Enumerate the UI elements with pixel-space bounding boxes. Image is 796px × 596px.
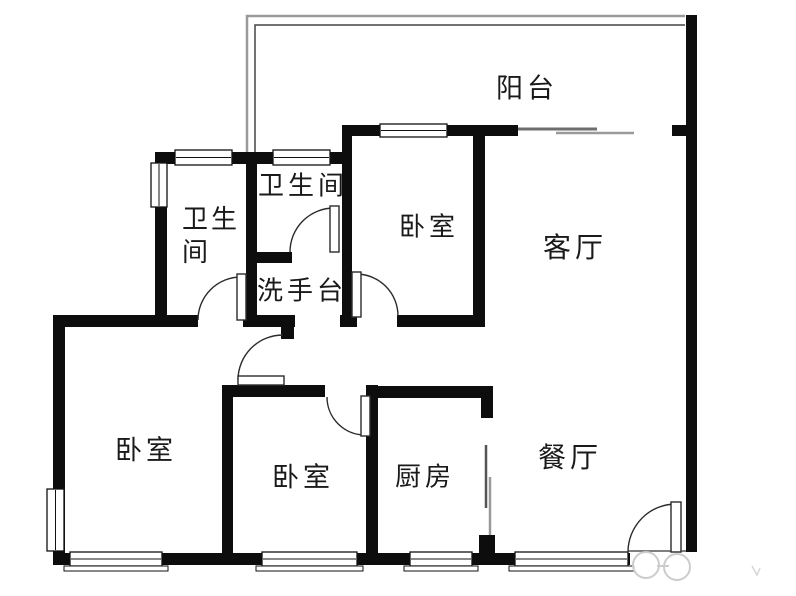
door-bathroom-left-leaf: [237, 274, 246, 320]
door-bedroom-mid-arc: [327, 397, 365, 435]
door-entry-leaf: [671, 502, 681, 552]
watermark-logo-left: [633, 552, 659, 578]
wall-hall-door-stub: [281, 327, 294, 339]
room-label-bedroom-top: 卧室: [399, 207, 459, 244]
window-bedroom-left-south-sill: [64, 566, 168, 571]
watermark-tick: [752, 566, 760, 575]
door-bedroom-top-arc: [356, 274, 398, 316]
wall-right: [686, 15, 697, 552]
door-bedroom-top-leaf: [352, 272, 361, 317]
wall-bathrooms-middle: [246, 152, 257, 320]
wall-kitchen-stub-north: [481, 386, 493, 418]
wall-bedroom-mid-north: [222, 385, 325, 397]
door-hall-leaf: [238, 376, 284, 385]
wall-hall-north-east: [243, 315, 295, 327]
room-label-kitchen: 厨房: [395, 457, 455, 494]
wall-kitchen-north: [366, 386, 493, 398]
wall-balcony-stub: [672, 125, 686, 136]
floor-plan: 阳台 卫生间 卫生 间 洗手台 卧室 客厅 卧室 卧室 厨房 餐厅: [0, 0, 796, 596]
wall-living-west: [473, 136, 485, 327]
room-label-bathroom-left: 卫生 间: [182, 203, 240, 269]
room-label-bedroom-left: 卧室: [115, 429, 177, 468]
floor-plan-svg: [0, 0, 796, 596]
wall-bedroom-top-south: [397, 315, 485, 327]
door-bathroom-left-arc: [198, 277, 241, 320]
door-bathroom-right-leaf: [330, 206, 339, 252]
wall-bathroom-right-south: [257, 252, 292, 263]
room-label-bedroom-middle: 卧室: [272, 456, 334, 495]
door-hall-arc: [238, 335, 283, 380]
room-label-bathroom-left-line1: 卫生: [182, 203, 240, 236]
window-dining-south-sill: [509, 566, 634, 571]
room-label-bathroom-right: 卫生间: [258, 166, 348, 203]
wall-hall-north-west: [53, 315, 198, 327]
room-label-living-room: 客厅: [543, 226, 607, 266]
room-label-balcony: 阳台: [496, 67, 558, 106]
door-bedroom-mid-leaf: [361, 396, 370, 436]
room-label-dining-room: 餐厅: [538, 436, 602, 476]
room-label-washstand: 洗手台: [257, 271, 347, 308]
wall-kitchen-stub-south: [479, 535, 495, 554]
door-entry-arc: [628, 504, 676, 552]
door-bathroom-right-arc: [290, 208, 334, 252]
room-label-bathroom-left-line2: 间: [182, 236, 240, 269]
window-bedroom-mid-south-sill: [256, 566, 363, 571]
wall-bedrooms-shared: [222, 385, 233, 565]
window-kitchen-south-sill: [404, 566, 478, 571]
